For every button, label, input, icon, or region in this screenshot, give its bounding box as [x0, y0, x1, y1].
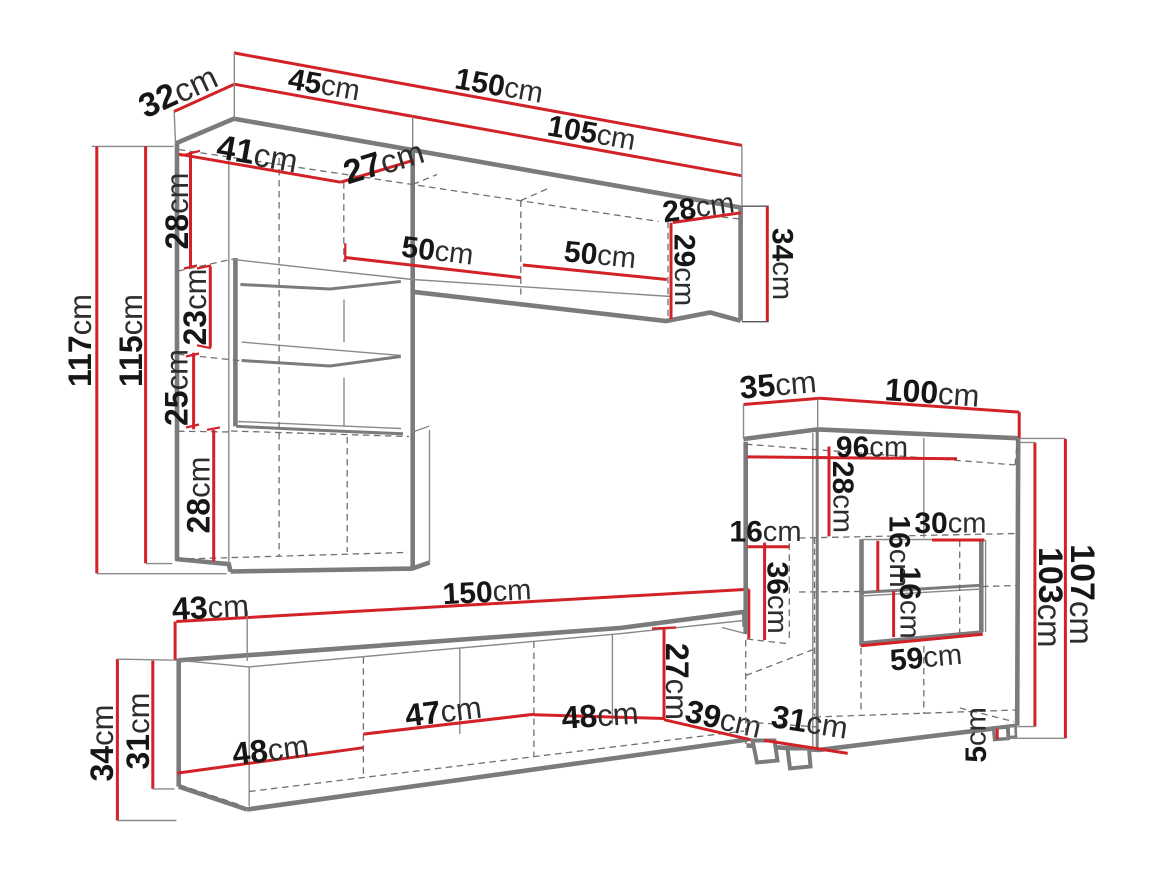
- svg-text:30cm: 30cm: [914, 507, 986, 540]
- svg-text:35cm: 35cm: [738, 363, 818, 406]
- svg-text:16cm: 16cm: [893, 567, 926, 639]
- svg-text:16cm: 16cm: [729, 516, 801, 549]
- svg-text:29cm: 29cm: [668, 234, 701, 306]
- svg-text:23cm: 23cm: [177, 269, 213, 346]
- svg-text:25cm: 25cm: [159, 349, 195, 426]
- svg-text:28cm: 28cm: [181, 457, 217, 534]
- svg-text:150cm: 150cm: [442, 574, 532, 612]
- svg-text:59cm: 59cm: [889, 638, 964, 677]
- svg-text:115cm: 115cm: [113, 294, 149, 387]
- svg-text:34cm: 34cm: [84, 705, 120, 782]
- svg-text:43cm: 43cm: [171, 587, 250, 627]
- svg-text:48cm: 48cm: [560, 695, 639, 736]
- svg-text:107cm: 107cm: [1063, 544, 1101, 645]
- svg-text:5cm: 5cm: [960, 707, 993, 762]
- svg-text:34cm: 34cm: [766, 228, 799, 300]
- svg-text:28cm: 28cm: [826, 461, 859, 533]
- svg-text:117cm: 117cm: [62, 294, 98, 387]
- svg-text:100cm: 100cm: [884, 371, 981, 414]
- svg-text:28cm: 28cm: [159, 173, 195, 250]
- svg-text:96cm: 96cm: [836, 431, 908, 464]
- svg-text:31cm: 31cm: [120, 693, 156, 770]
- svg-text:27cm: 27cm: [659, 643, 695, 720]
- svg-text:36cm: 36cm: [761, 562, 794, 634]
